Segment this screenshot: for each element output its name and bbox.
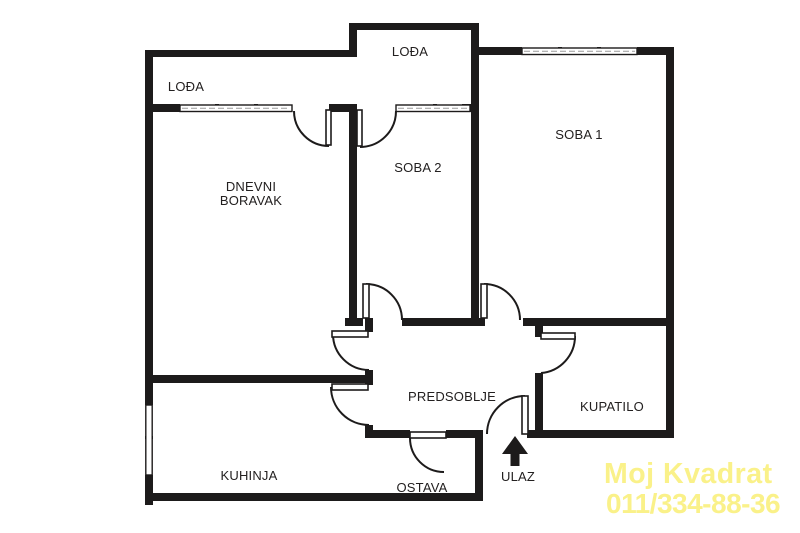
room-label-loda-top: LOĐA <box>392 44 428 59</box>
room-label-predsoblje: PREDSOBLJE <box>408 389 496 404</box>
balcony-door-dnevni <box>326 110 331 145</box>
floor-plan-drawing: LOĐA LOĐA SOBA 1 SOBA 2 DNEVNI BORAVAK P… <box>0 0 800 533</box>
watermark-brand: Moj Kvadrat <box>604 458 773 490</box>
dnevni-door <box>332 331 368 337</box>
soba1-door <box>481 284 487 318</box>
entrance-label: ULAZ <box>501 469 535 484</box>
room-label-dnevni-2: BORAVAK <box>220 193 282 208</box>
room-label-kuhinja: KUHINJA <box>220 468 277 483</box>
watermark-phone: 011/334-88-36 <box>606 488 780 519</box>
floor-plan-canvas: LOĐA LOĐA SOBA 1 SOBA 2 DNEVNI BORAVAK P… <box>0 0 800 533</box>
entrance-door <box>522 396 528 434</box>
room-label-loda-left: LOĐA <box>168 79 204 94</box>
balcony-door-soba2 <box>357 110 362 146</box>
room-label-soba2: SOBA 2 <box>394 160 441 175</box>
kuhinja-window <box>146 405 152 475</box>
room-label-dnevni-1: DNEVNI <box>226 179 276 194</box>
watermark: Moj Kvadrat 011/334-88-36 <box>604 458 780 519</box>
entrance-arrow-icon <box>502 436 528 466</box>
windows <box>146 48 637 475</box>
soba2-door <box>363 284 369 318</box>
room-label-kupatilo: KUPATILO <box>580 399 644 414</box>
ostava-door <box>410 432 446 438</box>
kupatilo-door <box>541 333 575 339</box>
kuhinja-door <box>332 384 368 390</box>
room-label-ostava: OSTAVA <box>396 480 447 495</box>
room-label-soba1: SOBA 1 <box>555 127 602 142</box>
